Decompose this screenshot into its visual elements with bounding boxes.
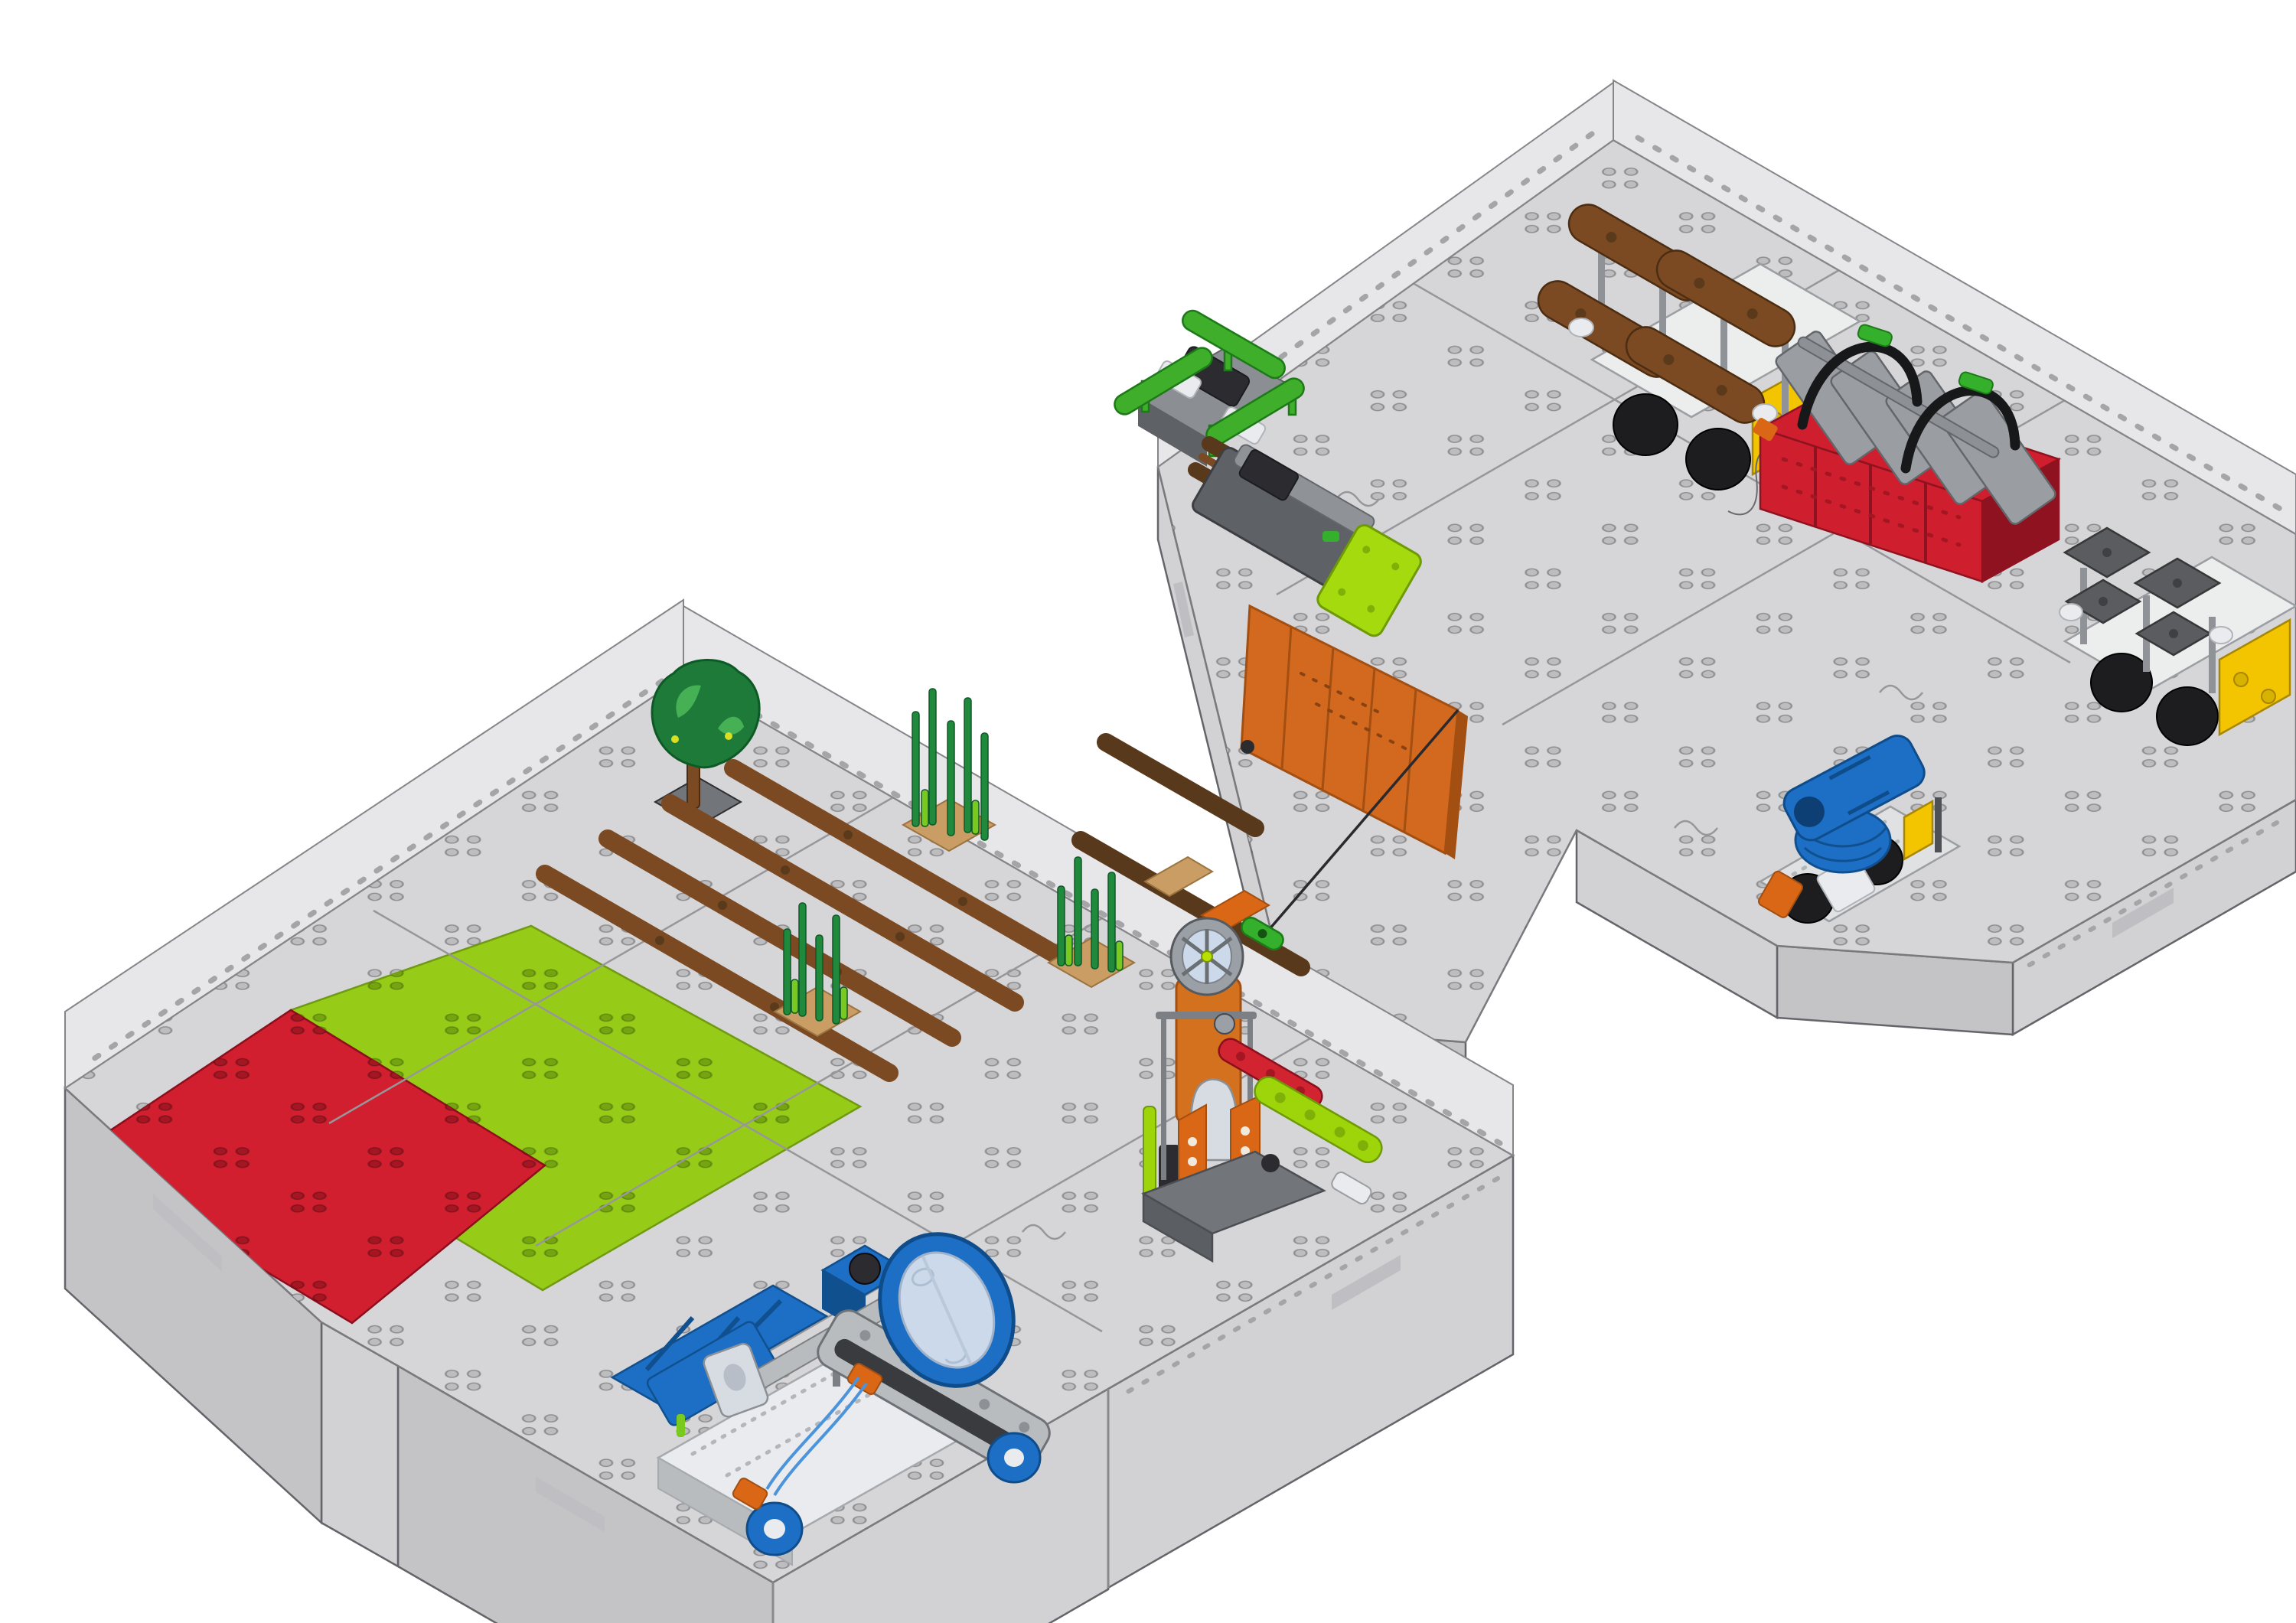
crop-stalk (912, 712, 919, 826)
flower-wheel-hub (1004, 1449, 1024, 1467)
tree-fruit (671, 735, 679, 743)
white-roller (1569, 318, 1593, 337)
flower-wheel-hub (764, 1519, 785, 1539)
small-pulley (1215, 1014, 1234, 1034)
bracket-hole (1188, 1157, 1197, 1166)
rail-peg (655, 936, 664, 945)
white-roller (2060, 604, 2082, 621)
rail-peg (843, 830, 853, 839)
crop-stalk (947, 721, 954, 836)
tree-fruit (725, 732, 732, 740)
rail-peg (781, 865, 790, 875)
cart-wheel (1686, 429, 1750, 490)
rail-peg (718, 901, 727, 910)
white-roller (2210, 627, 2232, 644)
crop-stalk (1108, 872, 1115, 972)
crop-stalk (784, 929, 791, 1015)
crop-sprout (1065, 935, 1072, 966)
hole (2099, 597, 2108, 606)
hopper-clip (1322, 531, 1339, 542)
hole (2102, 548, 2112, 557)
bracket-hole (1241, 1126, 1250, 1136)
crop-sprout (840, 987, 847, 1019)
crop-sprout (921, 790, 928, 826)
plate-hole (2262, 689, 2275, 703)
wall-hinge-roller (1241, 740, 1254, 754)
crop-stalk (1075, 857, 1081, 966)
pulley-hub (1202, 951, 1212, 962)
green-pin (677, 1414, 685, 1437)
crop-stalk (833, 915, 840, 1024)
bracket-hole (1188, 1137, 1197, 1146)
hole (2173, 578, 2182, 588)
tower-crossbar (1156, 1012, 1257, 1019)
motor-knob (850, 1253, 880, 1284)
crop-stalk (816, 935, 823, 1021)
crop-stalk (1058, 886, 1065, 966)
base-roller (1261, 1154, 1280, 1172)
crop-stalk (981, 733, 988, 840)
plate-hole (2234, 673, 2248, 686)
crop-sprout (791, 979, 798, 1013)
crop-cluster (903, 689, 995, 851)
rail-peg (958, 897, 967, 906)
crop-stalk (799, 903, 806, 1016)
crop-sprout (972, 800, 979, 834)
crop-stalk (964, 698, 971, 833)
crop-sprout (1116, 941, 1123, 970)
field-render (0, 0, 2296, 1623)
crop-stalk (1091, 889, 1098, 969)
turret-post (1935, 797, 1942, 852)
tower-rail (1161, 1018, 1166, 1180)
rail-peg (895, 932, 905, 941)
cart-wheel (1613, 394, 1678, 455)
cart-wheel (2157, 687, 2218, 745)
field-svg (0, 0, 2296, 1623)
hole (2169, 629, 2178, 638)
crop-stalk (929, 689, 936, 825)
